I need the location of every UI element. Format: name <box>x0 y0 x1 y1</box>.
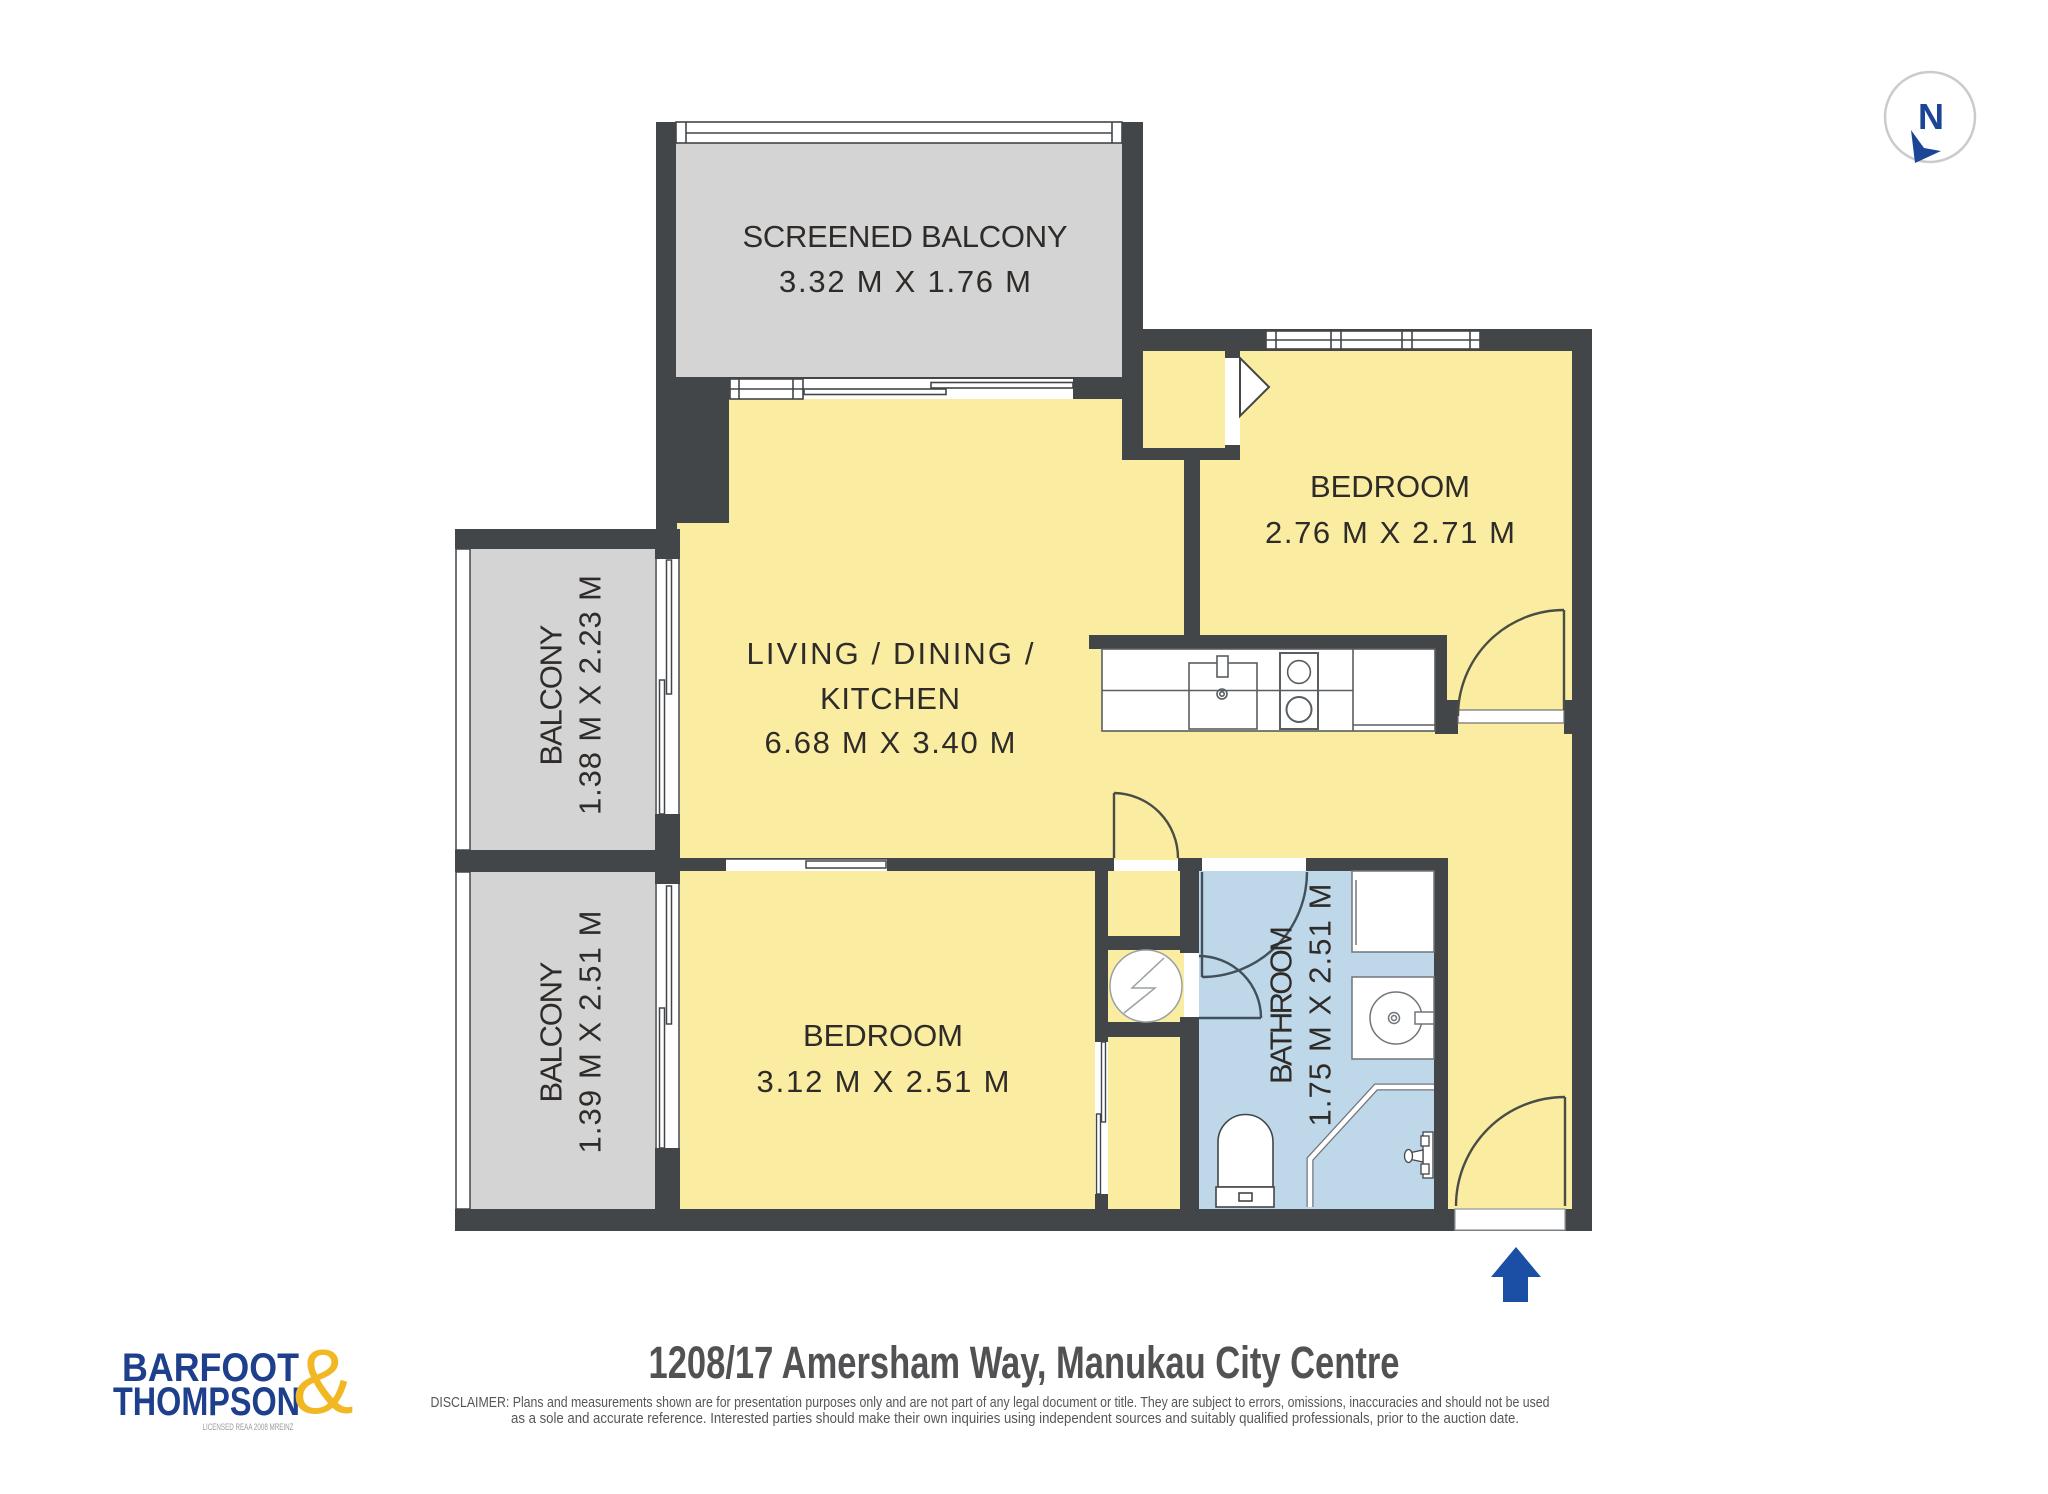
svg-text:BEDROOM: BEDROOM <box>1310 469 1470 504</box>
svg-text:BALCONY: BALCONY <box>534 962 569 1103</box>
svg-text:&: & <box>292 1331 353 1433</box>
svg-text:1.39 M X 2.51 M: 1.39 M X 2.51 M <box>573 911 608 1154</box>
svg-text:BALCONY: BALCONY <box>534 625 569 766</box>
svg-text:KITCHEN: KITCHEN <box>820 681 960 716</box>
svg-text:LICENSED REAA 2008 MREINZ: LICENSED REAA 2008 MREINZ <box>203 1422 294 1432</box>
svg-text:THOMPSON: THOMPSON <box>113 1380 300 1424</box>
svg-text:as a sole and accurate referen: as a sole and accurate reference. Intere… <box>511 1410 1519 1427</box>
svg-text:SCREENED BALCONY: SCREENED BALCONY <box>743 219 1068 254</box>
svg-text:DISCLAIMER: Plans and measurem: DISCLAIMER: Plans and measurements shown… <box>431 1394 1550 1411</box>
svg-text:BATHROOM: BATHROOM <box>1264 926 1299 1084</box>
svg-text:1208/17 Amersham Way, Manukau: 1208/17 Amersham Way, Manukau City Centr… <box>649 1337 1400 1388</box>
svg-text:BEDROOM: BEDROOM <box>803 1018 963 1053</box>
svg-text:LIVING / DINING /: LIVING / DINING / <box>747 636 1034 671</box>
svg-text:1.75 M X 2.51 M: 1.75 M X 2.51 M <box>1303 884 1338 1127</box>
svg-text:1.38 M X 2.23 M: 1.38 M X 2.23 M <box>573 575 608 815</box>
svg-text:N: N <box>1918 96 1944 137</box>
